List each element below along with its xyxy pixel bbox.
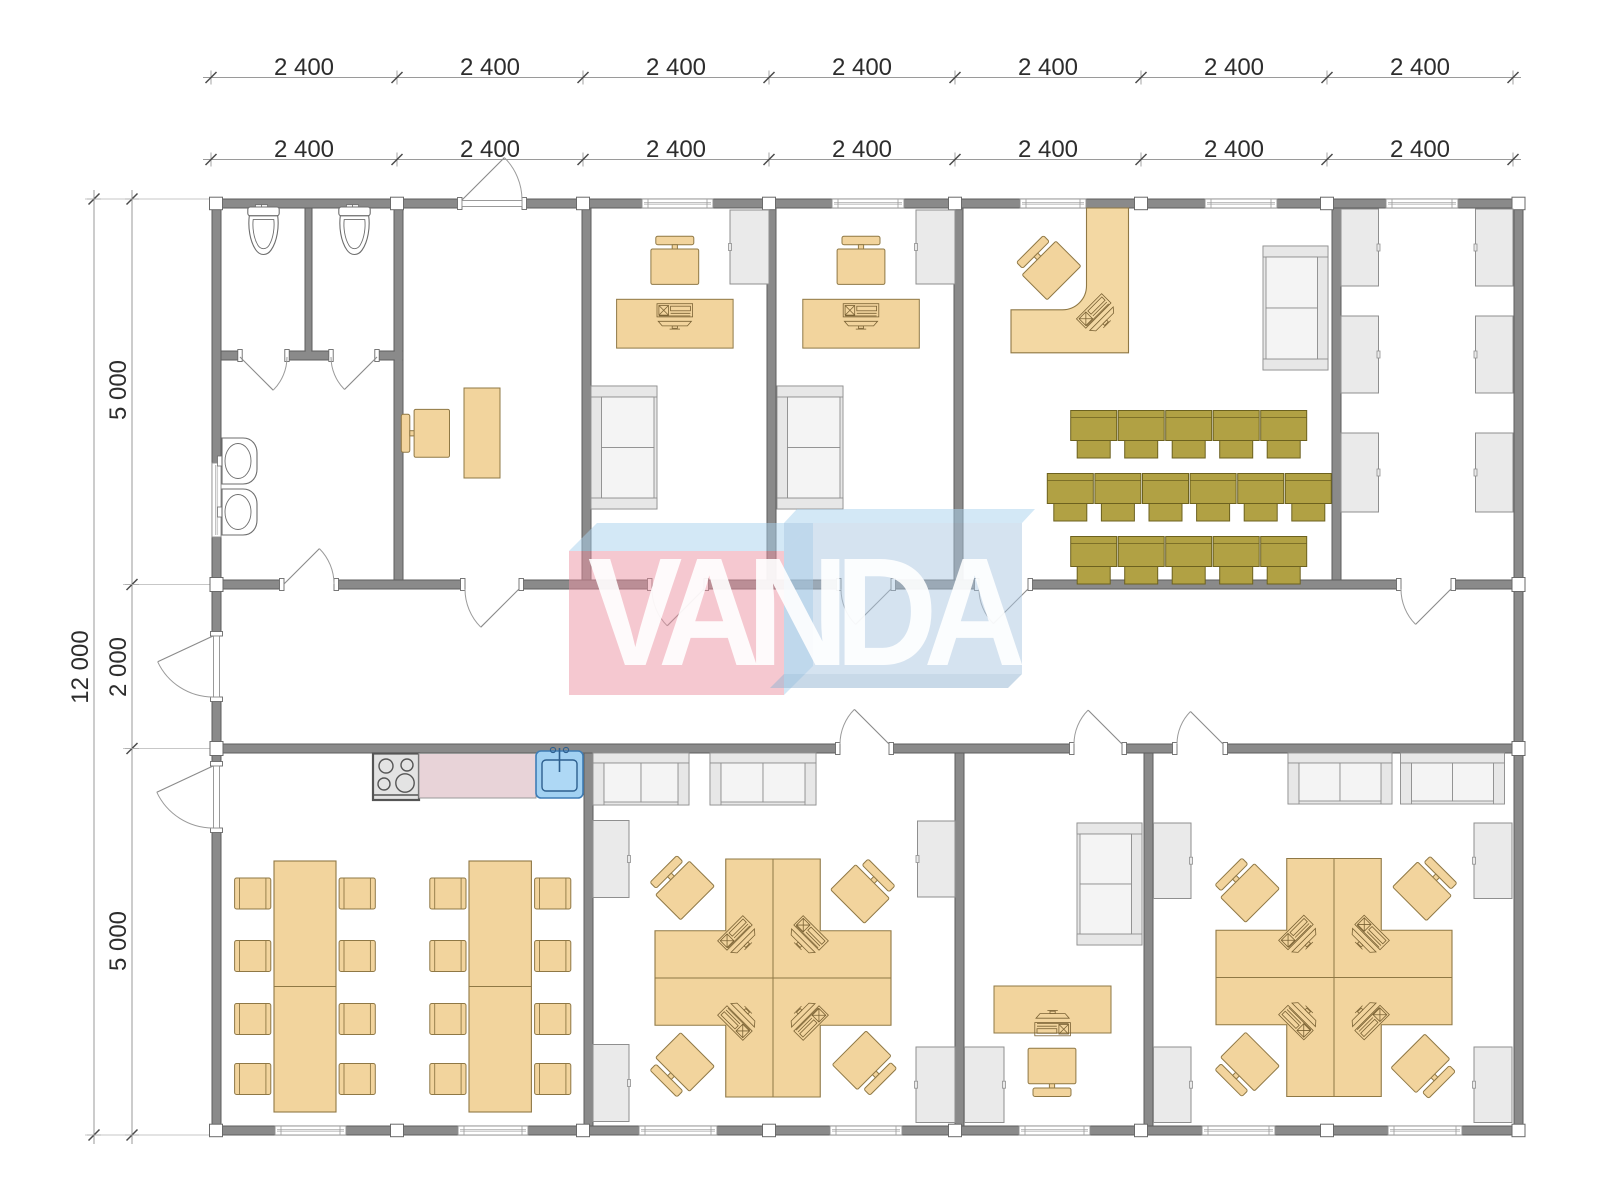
svg-text:VANDA: VANDA (588, 527, 1022, 699)
svg-text:2 400: 2 400 (1390, 136, 1450, 163)
svg-text:2 400: 2 400 (460, 136, 520, 163)
svg-text:2 400: 2 400 (832, 54, 892, 81)
svg-text:2 000: 2 000 (105, 637, 132, 697)
svg-text:2 400: 2 400 (1018, 54, 1078, 81)
svg-text:2 400: 2 400 (460, 54, 520, 81)
svg-text:2 400: 2 400 (832, 136, 892, 163)
svg-text:2 400: 2 400 (274, 54, 334, 81)
svg-text:2 400: 2 400 (1204, 136, 1264, 163)
svg-text:5 000: 5 000 (105, 360, 132, 420)
svg-text:2 400: 2 400 (1018, 136, 1078, 163)
svg-text:2 400: 2 400 (646, 136, 706, 163)
svg-text:2 400: 2 400 (1204, 54, 1264, 81)
svg-text:2 400: 2 400 (274, 136, 334, 163)
svg-text:12 000: 12 000 (67, 630, 94, 703)
svg-text:2 400: 2 400 (1390, 54, 1450, 81)
svg-text:5 000: 5 000 (105, 911, 132, 971)
svg-text:2 400: 2 400 (646, 54, 706, 81)
